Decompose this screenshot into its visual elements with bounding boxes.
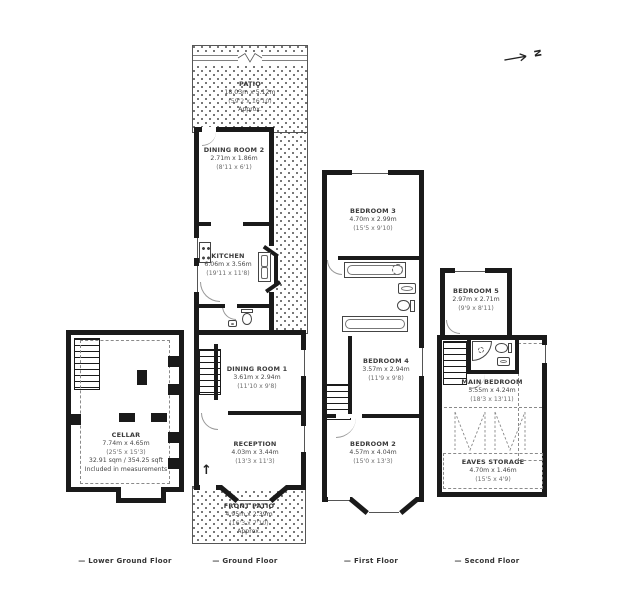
compass: N [502,47,541,65]
room-name: FRONT PATIO [192,502,306,511]
room-dims-m: 4.95m x 2.39m [192,511,306,520]
wall-opening [222,485,286,490]
room-label-bedroom-2: BEDROOM 2 4.57m x 4.04m (15'0 x 13'3) [330,440,416,466]
room-dims-ft: (59'2 x 16'10) [192,98,308,107]
room-dims-m: 18.03m x 5.12m [192,89,308,98]
window [455,268,485,273]
room-dims-m: 2.71m x 1.86m [198,155,270,164]
door-opening [336,414,362,418]
shower-head-icon [392,264,403,275]
room-name: PATIO [192,80,308,89]
bathtub-icon [342,316,408,332]
wall-segment [237,304,269,308]
north-label: N [531,49,542,58]
room-dims-m: 4.03m x 3.44m [212,449,298,458]
wall-segment [168,384,179,395]
room-name: EAVES STORAGE [443,458,543,467]
room-dims-m: 6.06m x 3.56m [196,261,260,270]
room-name: KITCHEN [196,252,260,261]
room-dims-m: 5.55m x 4.24m [442,387,542,396]
room-label-kitchen: KITCHEN 6.06m x 3.56m (19'11 x 11'8) [196,252,260,278]
caption-lower-ground-floor: — Lower Ground Floor [63,557,187,565]
room-label-patio: PATIO 18.03m x 5.12m (59'2 x 16'10) Appr… [192,80,308,115]
wall-opening [352,497,416,502]
room-dims-ft: (16'3 x 7'10) [192,520,306,529]
window [301,350,306,376]
door-opening [200,485,216,490]
room-name: BEDROOM 2 [330,440,416,449]
room-label-main-bedroom: MAIN BEDROOM 5.55m x 4.24m (18'3 x 13'11… [442,378,542,404]
window [301,426,306,452]
room-dims-ft: (15'5 x 4'9) [443,476,543,485]
patio-side-area [272,132,308,334]
room-note: Included in measurements [78,466,174,475]
wall-segment [71,414,81,425]
restricted-height-line [444,407,542,408]
room-name: RECEPTION [212,440,298,449]
floorplan-canvas: N CELLAR 7.74m x 4.65m (25'5 x 15'3) 32.… [0,0,620,589]
sloped-ceiling-marker-icon [453,410,487,452]
room-label-reception: RECEPTION 4.03m x 3.44m (13'3 x 11'3) [212,440,298,466]
caption-second-floor: — Second Floor [428,557,546,565]
room-name: BEDROOM 5 [444,287,508,296]
room-dims-ft: (11'10 x 9'8) [222,383,292,392]
toilet-icon [410,300,415,312]
entrance-arrow-icon: ↑ [201,464,212,477]
wall-segment [199,304,225,308]
cellar-pillar [151,413,167,422]
room-name: BEDROOM 4 [350,357,422,366]
room-dims-ft: (15'5 x 9'10) [330,225,416,234]
caption-first-floor: — First Floor [312,557,430,565]
room-name: CELLAR [78,431,174,440]
room-dims-m: 4.70m x 1.46m [443,467,543,476]
bay-window [369,509,399,514]
window [328,497,350,502]
room-name: MAIN BEDROOM [442,378,542,387]
door-opening [202,127,216,132]
room-note: Approx. [192,528,306,537]
room-label-front-patio: FRONT PATIO 4.95m x 2.39m (16'3 x 7'10) … [192,502,306,537]
caption-ground-floor: — Ground Floor [186,557,304,565]
wall-segment [467,340,471,374]
wall-segment [214,344,218,400]
room-dims-m: 3.57m x 2.94m [350,366,422,375]
room-dims-ft: (9'9 x 8'11) [444,305,508,314]
room-dims-m: 4.57m x 4.04m [330,449,416,458]
room-dims-ft: (18'3 x 13'11) [442,396,542,405]
wall-segment [199,222,211,226]
wall-segment [168,356,179,367]
north-arrow-icon [502,48,532,65]
room-dims-ft: (8'11 x 6'1) [198,164,270,173]
sink-icon [228,320,237,327]
room-label-dining-room-1: DINING ROOM 1 3.61m x 2.94m (11'10 x 9'8… [222,365,292,391]
room-label-eaves-storage: EAVES STORAGE 4.70m x 1.46m (15'5 x 4'9) [443,458,543,484]
cellar-pillar [137,370,147,385]
toilet-icon [508,343,512,353]
room-dims-m: 3.61m x 2.94m [222,374,292,383]
patio-break-line-icon [193,52,307,64]
wall-segment [515,340,519,374]
room-dims-ft: (25'5 x 15'3) [78,449,174,458]
wall-segment [228,411,301,415]
room-label-bedroom-5: BEDROOM 5 2.97m x 2.71m (9'9 x 8'11) [444,287,508,313]
toilet-icon [397,300,410,311]
room-name: DINING ROOM 2 [198,146,270,155]
room-dims-ft: (19'11 x 11'8) [196,270,260,279]
room-label-dining-room-2: DINING ROOM 2 2.71m x 1.86m (8'11 x 6'1) [198,146,270,172]
toilet-icon [242,313,252,325]
room-dims-m: 7.74m x 4.65m [78,440,174,449]
sloped-ceiling-marker-icon [493,410,527,452]
room-label-cellar: CELLAR 7.74m x 4.65m (25'5 x 15'3) 32.91… [78,431,174,475]
room-area: 32.91 sqm / 354.25 sqft [78,457,174,466]
sink-icon [398,283,416,294]
room-dims-ft: (15'0 x 13'3) [330,458,416,467]
sink-icon [497,357,510,366]
room-dims-ft: (11'9 x 9'8) [350,375,422,384]
cellar-pillar [119,413,135,422]
room-name: DINING ROOM 1 [222,365,292,374]
cellar-bay-protrusion [116,487,166,503]
room-dims-ft: (13'3 x 11'3) [212,458,298,467]
window [352,170,388,175]
room-note: Approx. [192,106,308,115]
wall-segment [338,256,424,260]
wall-segment [243,222,269,226]
wall-segment [467,370,519,374]
room-dims-m: 2.97m x 2.71m [444,296,508,305]
room-dims-m: 4.70m x 2.99m [330,216,416,225]
room-label-bedroom-3: BEDROOM 3 4.70m x 2.99m (15'5 x 9'10) [330,207,416,233]
toilet-icon [495,343,508,353]
window [542,345,547,363]
room-label-bedroom-4: BEDROOM 4 3.57m x 2.94m (11'9 x 9'8) [350,357,422,383]
room-name: BEDROOM 3 [330,207,416,216]
